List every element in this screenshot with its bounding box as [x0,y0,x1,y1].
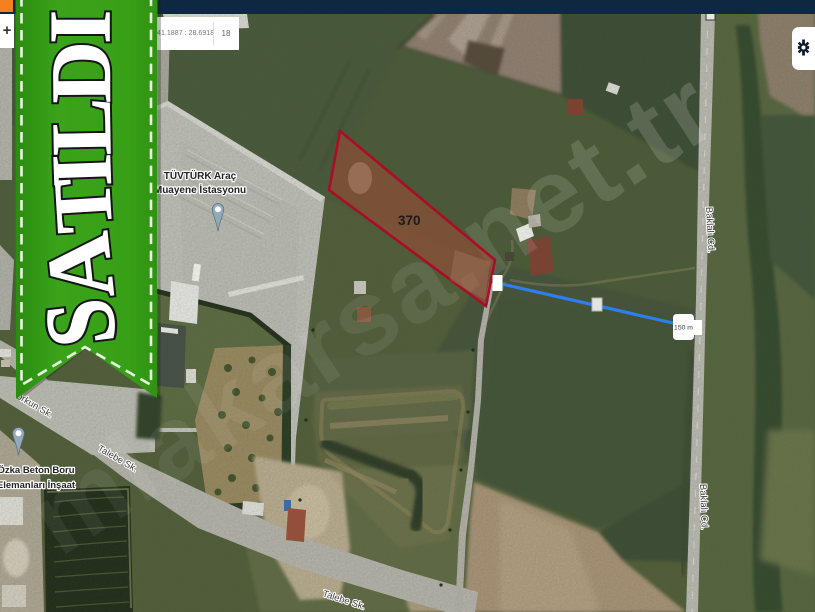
svg-text:A: A [26,228,134,305]
svg-text:370: 370 [398,213,421,228]
svg-text:D: D [32,41,129,104]
svg-text:I: I [33,152,130,189]
svg-text:Özka Beton Boru: Özka Beton Boru [0,465,75,476]
svg-text:L: L [33,97,130,156]
svg-text:I: I [33,10,130,44]
svg-text:Baklalı Cd.: Baklalı Cd. [697,484,710,530]
svg-text:150 m: 150 m [674,325,693,332]
svg-text:Elemanları İnşaat: Elemanları İnşaat [0,480,76,491]
